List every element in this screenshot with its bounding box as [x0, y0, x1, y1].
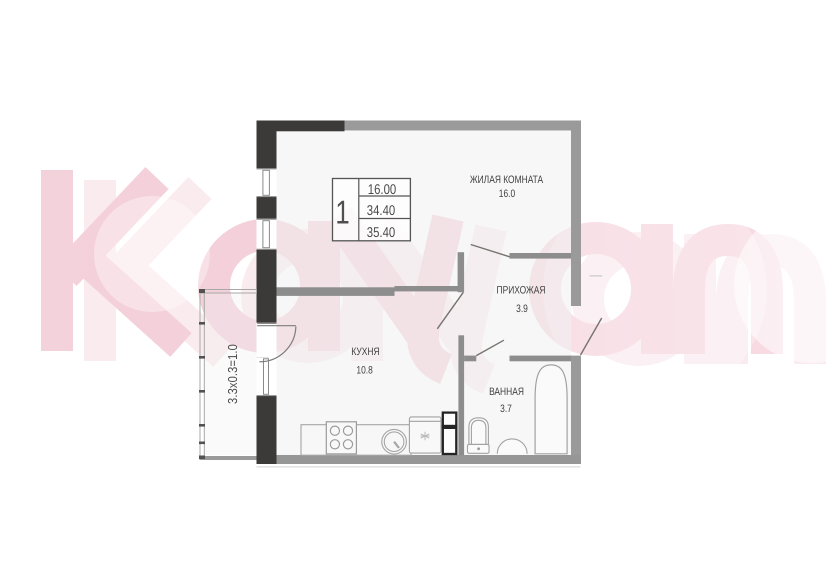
svg-text:10.8: 10.8 — [356, 365, 372, 377]
svg-text:35.40: 35.40 — [367, 225, 395, 241]
svg-text:16.0: 16.0 — [499, 188, 515, 200]
svg-text:КУХНЯ: КУХНЯ — [351, 346, 379, 358]
svg-text:34.40: 34.40 — [367, 203, 395, 219]
svg-text:16.00: 16.00 — [368, 182, 396, 198]
svg-text:ПРИХОЖАЯ: ПРИХОЖАЯ — [497, 285, 546, 297]
svg-text:ВАННАЯ: ВАННАЯ — [489, 386, 524, 398]
svg-text:1: 1 — [335, 194, 349, 231]
svg-text:3.7: 3.7 — [500, 403, 512, 415]
svg-text:3.9: 3.9 — [516, 303, 528, 315]
svg-text:3.3x0.3=1.0: 3.3x0.3=1.0 — [225, 344, 240, 404]
svg-text:ЖИЛАЯ КОМНАТА: ЖИЛАЯ КОМНАТА — [470, 174, 544, 186]
